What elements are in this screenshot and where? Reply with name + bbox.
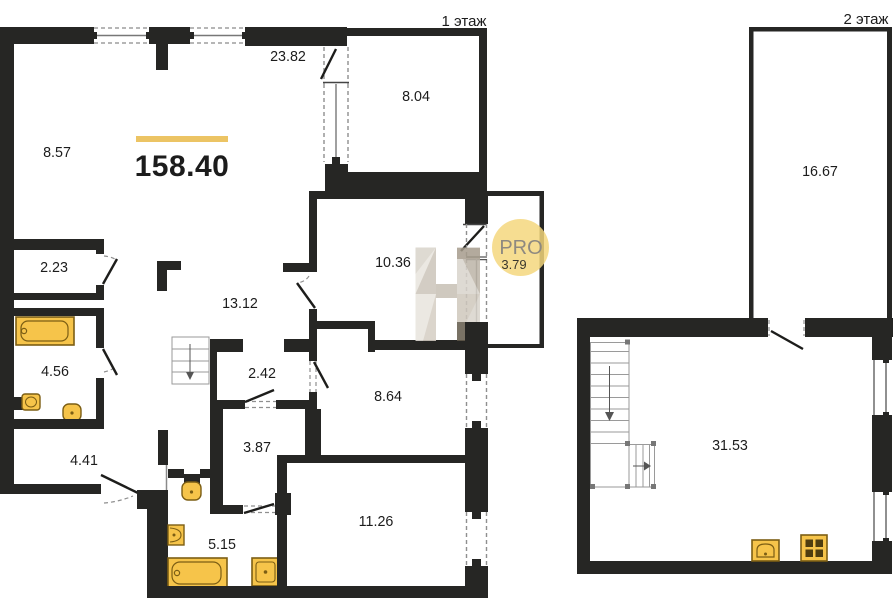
svg-text:16.67: 16.67 [802, 164, 838, 180]
svg-text:2.23: 2.23 [40, 260, 68, 276]
svg-text:3.87: 3.87 [243, 440, 271, 456]
svg-text:11.26: 11.26 [359, 514, 394, 530]
svg-text:2.42: 2.42 [248, 366, 276, 382]
svg-text:4.56: 4.56 [41, 364, 69, 380]
svg-text:PRO: PRO [499, 237, 542, 259]
svg-text:1 этаж: 1 этаж [442, 13, 487, 30]
svg-text:13.12: 13.12 [222, 296, 258, 312]
svg-text:8.57: 8.57 [43, 145, 71, 161]
svg-text:31.53: 31.53 [712, 438, 748, 454]
svg-text:5.15: 5.15 [208, 537, 236, 553]
svg-text:8.04: 8.04 [402, 89, 430, 105]
svg-text:10.36: 10.36 [375, 255, 411, 271]
svg-text:4.41: 4.41 [70, 453, 98, 469]
svg-text:2 этаж: 2 этаж [844, 11, 889, 28]
svg-text:23.82: 23.82 [270, 49, 306, 65]
svg-text:158.40: 158.40 [135, 150, 230, 183]
svg-text:3.79: 3.79 [501, 257, 526, 272]
svg-text:8.64: 8.64 [374, 389, 402, 405]
